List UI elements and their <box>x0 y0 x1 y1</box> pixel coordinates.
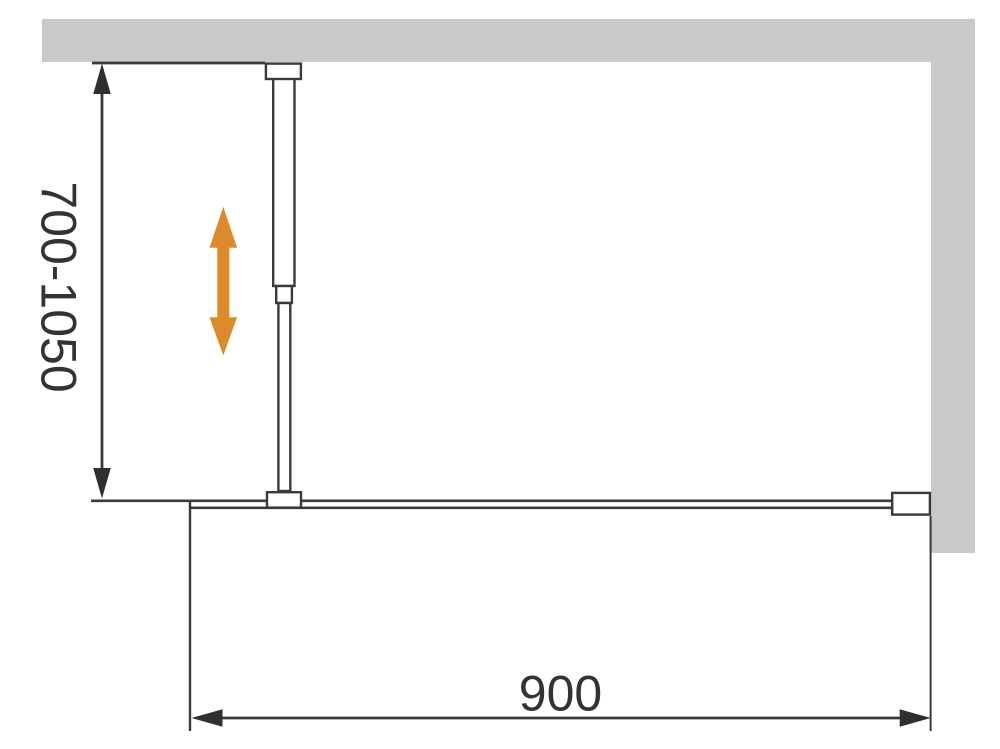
svg-text:700-1050: 700-1050 <box>30 181 86 392</box>
svg-text:900: 900 <box>519 666 602 722</box>
